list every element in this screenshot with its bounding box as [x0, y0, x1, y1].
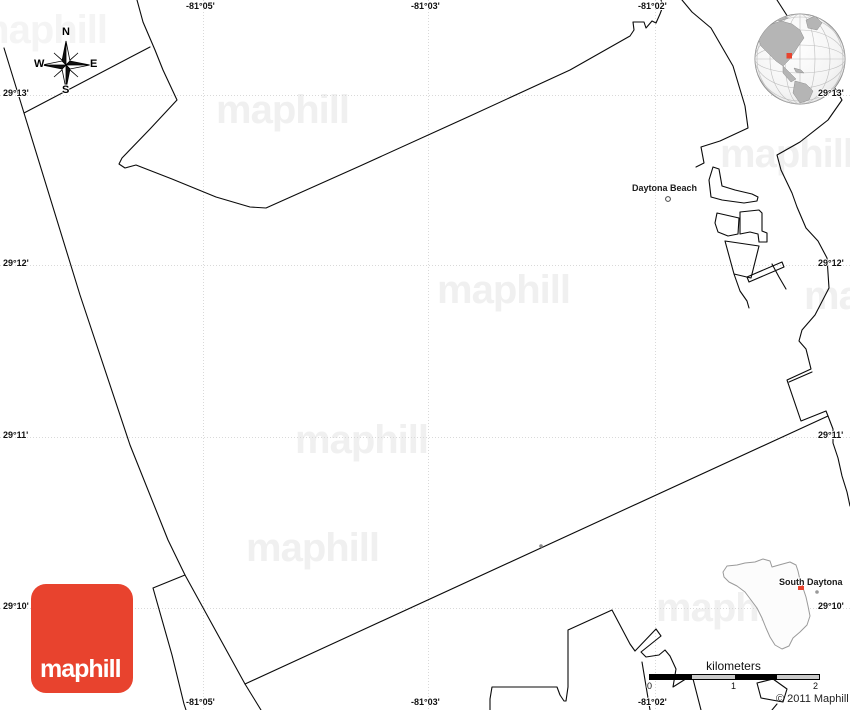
city-label-daytona-beach: Daytona Beach — [632, 183, 697, 193]
daytona-beach-marker — [666, 197, 671, 202]
maphill-logo[interactable]: maphill — [31, 584, 133, 693]
compass-south-label: S — [62, 84, 69, 96]
scale-tick-2: 2 — [813, 681, 818, 691]
compass-west-label: W — [34, 58, 44, 70]
boundary-dot-marker — [539, 544, 543, 548]
scale-segment — [692, 675, 734, 679]
compass-east-label: E — [90, 58, 97, 70]
river-west-shore — [682, 0, 748, 167]
island-shape — [715, 213, 739, 236]
inset-town-dot — [815, 590, 819, 594]
scale-tick-0: 0 — [647, 681, 652, 691]
latitude-label-right: 29°12' — [818, 258, 844, 268]
florida-inset — [723, 559, 819, 649]
longitude-label-top: -81°03' — [411, 1, 440, 11]
copyright-notice: © 2011 Maphill — [776, 693, 849, 705]
compass-area-segment — [24, 47, 150, 113]
map-canvas: maphill maphill maphill maphill maphill … — [0, 0, 850, 710]
florida-outline — [723, 559, 810, 649]
longitude-label-top: -81°02' — [638, 1, 667, 11]
shore-shape — [740, 210, 767, 242]
maphill-logo-text: maphill — [40, 655, 121, 684]
globe-location-marker — [787, 53, 793, 59]
latitude-label-right: 29°13' — [818, 88, 844, 98]
longitude-label-bottom: -81°05' — [186, 697, 215, 707]
longitude-label-top: -81°05' — [186, 1, 215, 11]
scale-segment — [650, 675, 692, 679]
latitude-label-left: 29°10' — [3, 601, 29, 611]
west-boundary-branch — [153, 575, 186, 710]
south-boundary-diagonal — [245, 416, 828, 684]
latitude-label-left: 29°12' — [3, 258, 29, 268]
peninsula-shape — [709, 167, 758, 203]
latitude-label-left: 29°11' — [3, 430, 28, 440]
longitude-label-bottom: -81°03' — [411, 697, 440, 707]
scale-segment — [777, 675, 819, 679]
latitude-label-left: 29°13' — [3, 88, 29, 98]
scale-tick-1: 1 — [731, 681, 736, 691]
scalebar-unit-label: kilometers — [649, 659, 818, 673]
compass-north-label: N — [62, 26, 70, 38]
latitude-label-right: 29°10' — [818, 601, 844, 611]
north-boundary-line — [119, 0, 663, 208]
scale-bar — [649, 674, 820, 680]
scale-segment — [735, 675, 777, 679]
inset-city-label-south-daytona: South Daytona — [779, 577, 843, 587]
longitude-label-bottom: -81°02' — [638, 697, 667, 707]
shore-tail — [734, 274, 749, 308]
shore-block — [725, 241, 759, 278]
causeway-line — [772, 264, 786, 289]
latitude-label-right: 29°11' — [818, 430, 843, 440]
